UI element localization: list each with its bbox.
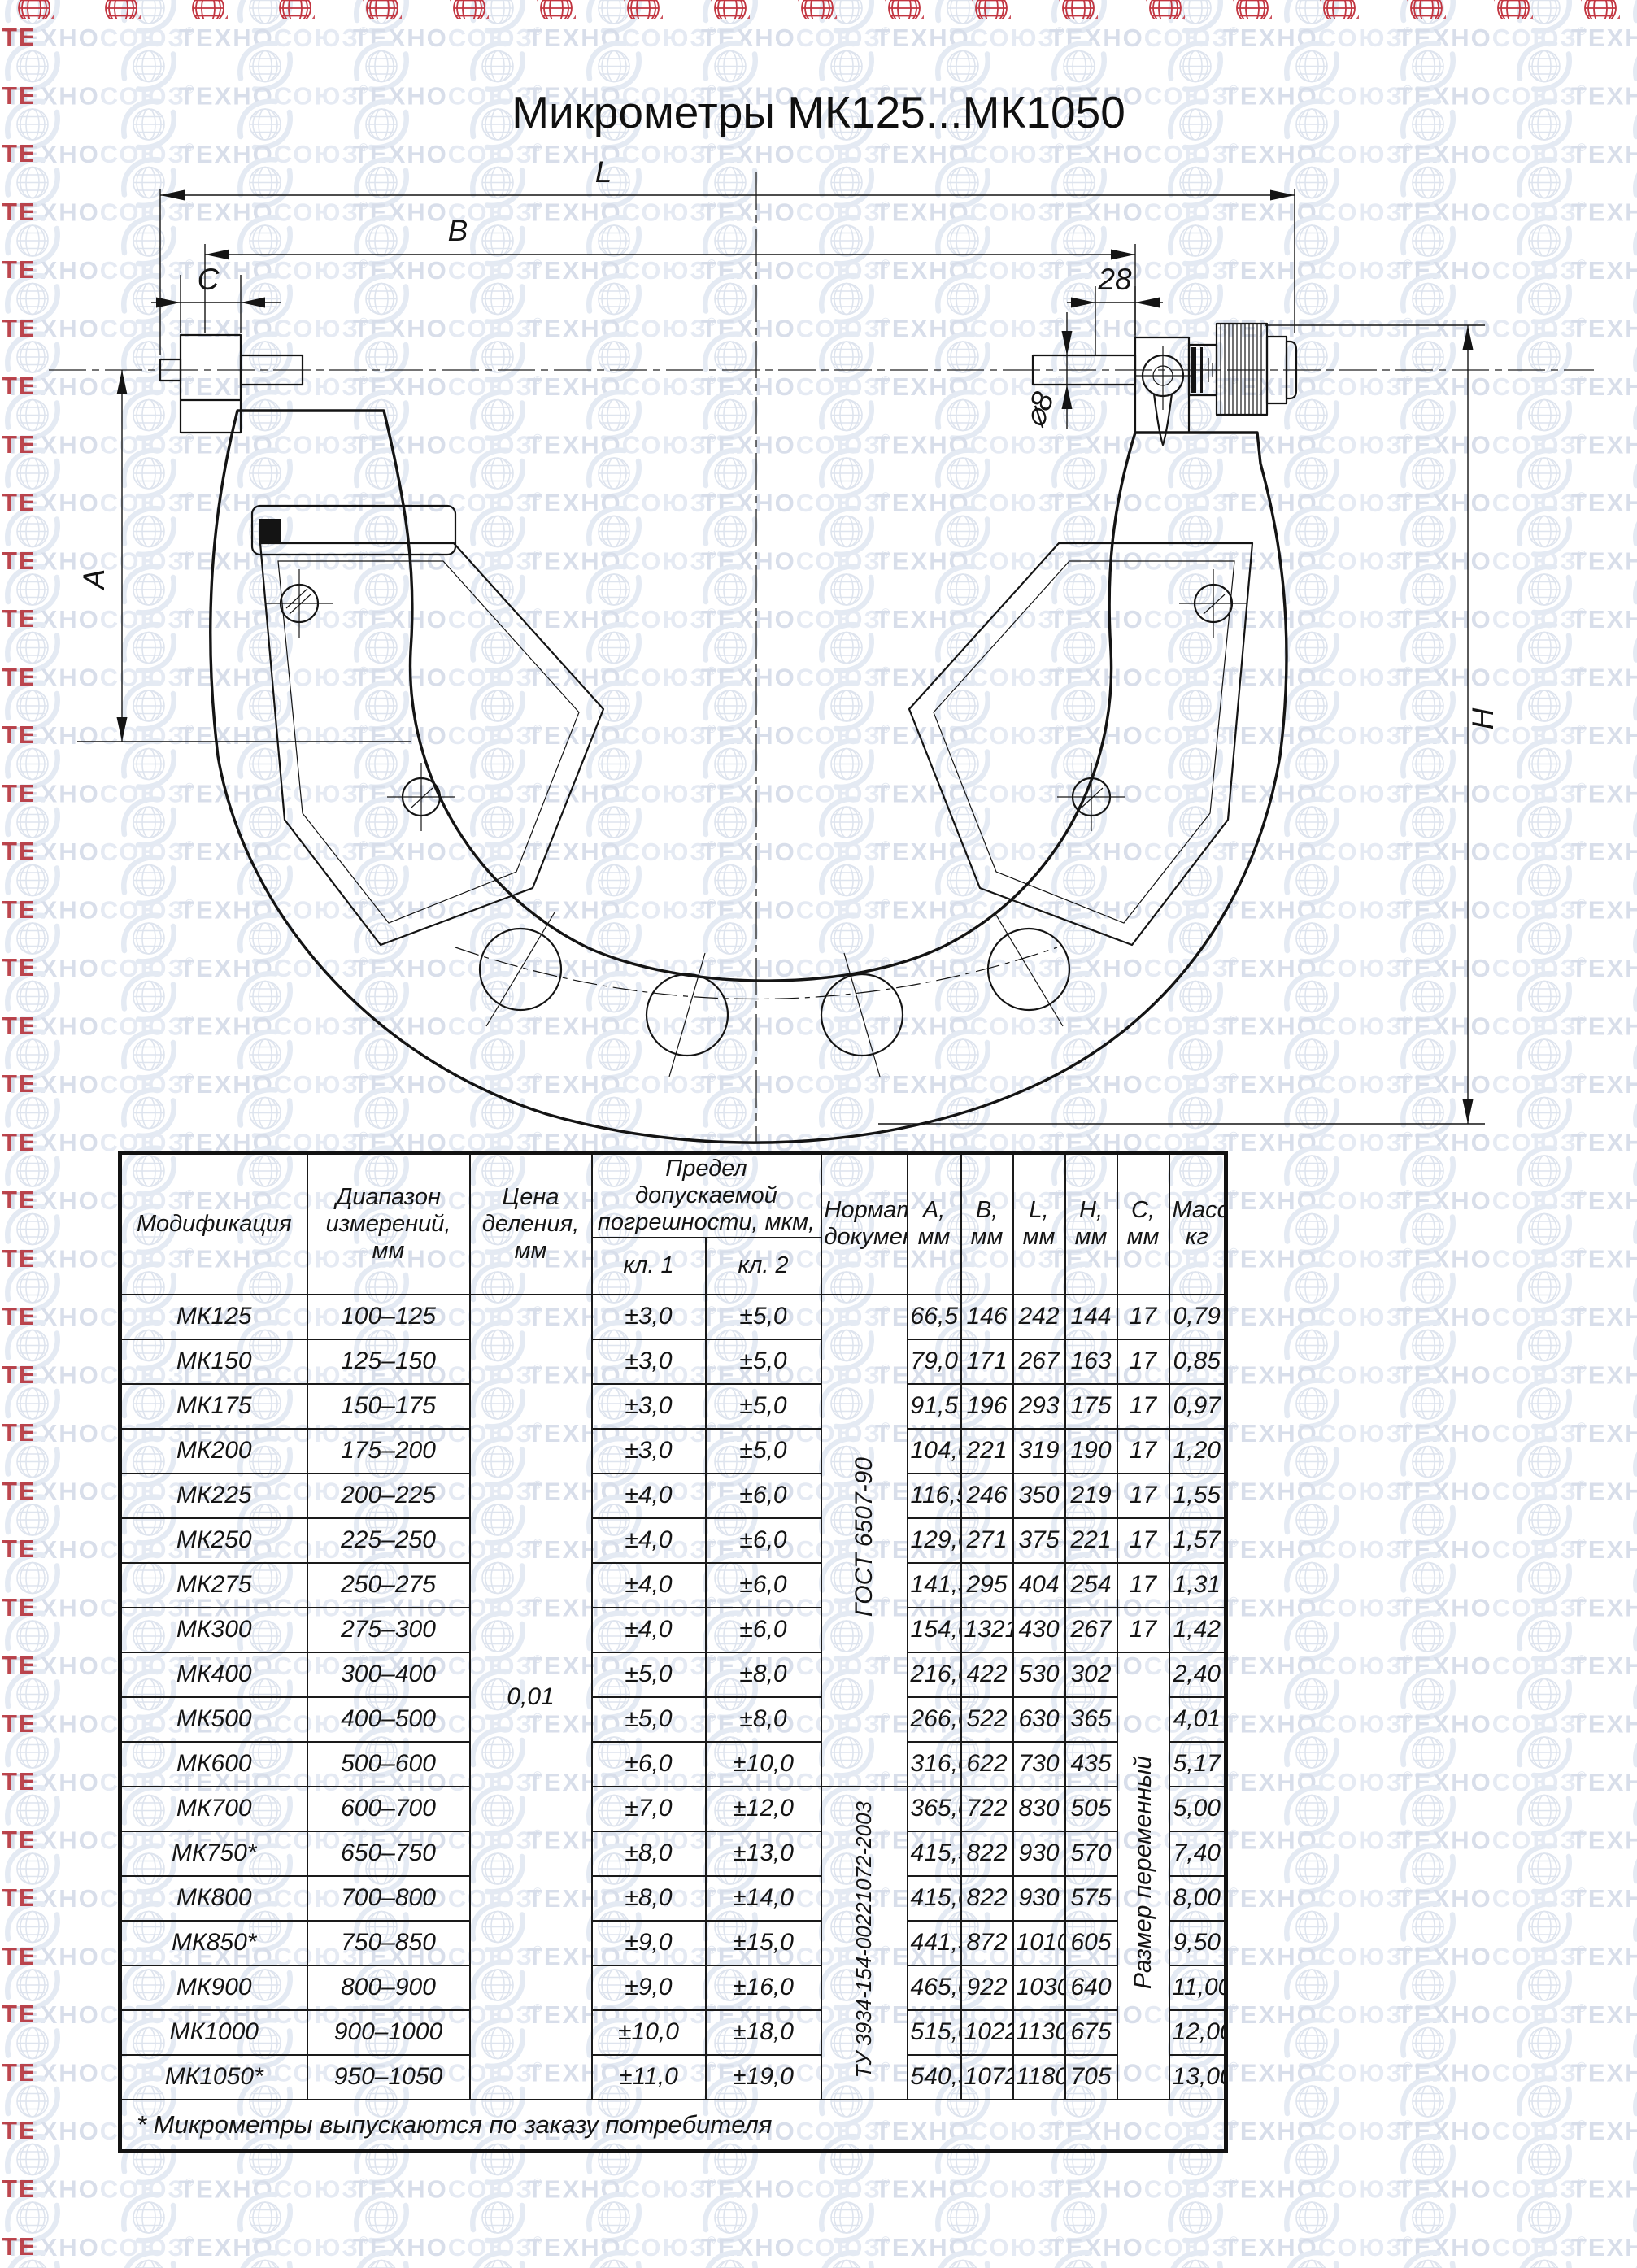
cell-l: 830: [1013, 1787, 1065, 1831]
cell-b: 221: [961, 1429, 1013, 1474]
watermark-red-text: ТЕХНОСОЮЗ: [2, 1418, 33, 1447]
cell-h: 267: [1065, 1608, 1117, 1652]
col-header-a: A, мм: [908, 1153, 961, 1295]
col-header-l: L, мм: [1013, 1153, 1065, 1295]
cell-h: 675: [1065, 2010, 1117, 2055]
cell-model: МК175: [120, 1384, 307, 1429]
table-row: МК600500–600±6,0±10,0316,06227304355,17: [120, 1742, 1226, 1787]
cell-model: МК600: [120, 1742, 307, 1787]
svg-text:ТЕХНОСОЮЗ®: ТЕХНОСОЮЗ®: [1571, 1419, 1637, 1447]
cell-a: 216,0: [908, 1652, 961, 1697]
dim-dia8: ⌀8: [1017, 312, 1073, 432]
cell-model: МК700: [120, 1787, 307, 1831]
watermark-red-text: ТЕХНОСОЮЗ: [2, 1651, 33, 1680]
cell-class2: ±19,0: [706, 2055, 821, 2100]
cell-class2: ±6,0: [706, 1608, 821, 1652]
svg-text:ТЕХНОСОЮЗ®: ТЕХНОСОЮЗ®: [1397, 1245, 1587, 1273]
watermark-red-text: ТЕХНОСОЮЗ: [2, 1477, 33, 1506]
cell-model: МК125: [120, 1295, 307, 1339]
svg-text:ТЕХНОСОЮЗ®: ТЕХНОСОЮЗ®: [1397, 1768, 1587, 1796]
watermark-red-text: ТЕХНОСОЮЗ: [2, 1244, 33, 1273]
cell-range: 250–275: [307, 1563, 470, 1608]
cell-l: 319: [1013, 1429, 1065, 1474]
cell-range: 100–125: [307, 1295, 470, 1339]
svg-text:ТЕХНОСОЮЗ®: ТЕХНОСОЮЗ®: [1223, 1710, 1413, 1739]
cell-a: 415,0: [908, 1876, 961, 1921]
dim-label-A: A: [77, 569, 111, 591]
cell-h: 705: [1065, 2055, 1117, 2100]
watermark-red-text: ТЕХНОСОЮЗ: [2, 2232, 33, 2261]
table-row: МК700600–700±7,0±12,0ТУ 3934-154-0022107…: [120, 1787, 1226, 1831]
svg-text:ТЕХНОСОЮЗ®: ТЕХНОСОЮЗ®: [701, 2233, 891, 2261]
cell-h: 144: [1065, 1295, 1117, 1339]
cell-l: 267: [1013, 1339, 1065, 1384]
cell-class2: ±6,0: [706, 1518, 821, 1563]
svg-text:ТЕХНОСОЮЗ®: ТЕХНОСОЮЗ®: [1397, 2233, 1587, 2261]
cell-b: 422: [961, 1652, 1013, 1697]
cell-h: 190: [1065, 1429, 1117, 1474]
watermark-red-text: ТЕХНОСОЮЗ: [2, 1942, 33, 1971]
cell-model: МК225: [120, 1474, 307, 1518]
cell-l: 1180: [1013, 2055, 1065, 2100]
cell-class1: ±4,0: [592, 1474, 706, 1518]
cell-mass: 9,50: [1169, 1921, 1226, 1965]
cell-a: 441,5: [908, 1921, 961, 1965]
cell-mass: 1,55: [1169, 1474, 1226, 1518]
cell-b: 1321: [961, 1608, 1013, 1652]
svg-text:ТЕХНОСОЮЗ®: ТЕХНОСОЮЗ®: [1571, 1535, 1637, 1564]
table-row: МК900800–900±9,0±16,0465,0922103064011,0…: [120, 1965, 1226, 2010]
page-title: Микрометры МК125...МК1050: [0, 86, 1637, 138]
svg-text:ТЕХНОСОЮЗ®: ТЕХНОСОЮЗ®: [1397, 1652, 1587, 1680]
cell-a: 540,5: [908, 2055, 961, 2100]
cell-model: МК500: [120, 1697, 307, 1742]
watermark-red-text: ТЕХНОСОЮЗ: [2, 2000, 33, 2029]
svg-text:ТЕХНОСОЮЗ®: ТЕХНОСОЮЗ®: [1571, 2059, 1637, 2087]
svg-text:ТЕХНОСОЮЗ®: ТЕХНОСОЮЗ®: [1223, 1884, 1413, 1913]
cell-class1: ±9,0: [592, 1965, 706, 2010]
dim-label-C: C: [198, 263, 220, 296]
cell-c: 17: [1117, 1384, 1169, 1429]
cell-a: 515,0: [908, 2010, 961, 2055]
footnote-row: * Микрометры выпускаются по заказу потре…: [120, 2100, 1226, 2152]
col-header-normative: Нормативный документ: [821, 1153, 908, 1295]
cell-range: 175–200: [307, 1429, 470, 1474]
dim-C: C: [151, 263, 281, 333]
dim-H: H: [878, 325, 1500, 1124]
svg-text:ТЕХНОСОЮЗ®: ТЕХНОСОЮЗ®: [1223, 1419, 1413, 1447]
cell-c: 17: [1117, 1429, 1169, 1474]
cell-class1: ±3,0: [592, 1384, 706, 1429]
watermark-red-text: ТЕХНОСОЮЗ: [2, 1709, 33, 1739]
cell-l: 293: [1013, 1384, 1065, 1429]
cell-a: 365,0: [908, 1787, 961, 1831]
watermark-red-text: ТЕХНОСОЮЗ: [2, 1826, 33, 1855]
svg-text:ТЕХНОСОЮЗ®: ТЕХНОСОЮЗ®: [1397, 1303, 1587, 1331]
cell-model: МК1000: [120, 2010, 307, 2055]
watermark-red-text: ТЕХНОСОЮЗ: [2, 1593, 33, 1622]
cell-c: 17: [1117, 1339, 1169, 1384]
dim-28: 28: [1067, 263, 1163, 355]
cell-mass: 5,17: [1169, 1742, 1226, 1787]
cell-h: 605: [1065, 1921, 1117, 1965]
dim-label-28: 28: [1097, 263, 1132, 296]
cell-l: 530: [1013, 1652, 1065, 1697]
barrel: [1189, 345, 1217, 395]
svg-text:ТЕХНОСОЮЗ®: ТЕХНОСОЮЗ®: [1397, 1535, 1587, 1564]
cell-h: 254: [1065, 1563, 1117, 1608]
watermark-red-text: ТЕХНОСОЮЗ: [2, 1534, 33, 1564]
table-row: МК850*750–850±9,0±15,0441,587210106059,5…: [120, 1921, 1226, 1965]
cell-mass: 12,00: [1169, 2010, 1226, 2055]
cell-l: 375: [1013, 1518, 1065, 1563]
cell-range: 500–600: [307, 1742, 470, 1787]
thimble: [1217, 324, 1267, 415]
svg-text:ТЕХНОСОЮЗ®: ТЕХНОСОЮЗ®: [527, 2175, 717, 2204]
svg-text:ТЕХНОСОЮЗ®: ТЕХНОСОЮЗ®: [1223, 1303, 1413, 1331]
cell-h: 221: [1065, 1518, 1117, 1563]
cell-class2: ±8,0: [706, 1652, 821, 1697]
cell-class2: ±8,0: [706, 1697, 821, 1742]
cell-model: МК300: [120, 1608, 307, 1652]
cell-model: МК275: [120, 1563, 307, 1608]
cell-class1: ±4,0: [592, 1563, 706, 1608]
watermark-red-text: ТЕХНОСОЮЗ: [2, 1767, 33, 1796]
watermark-red-text: ТЕХНОСОЮЗ: [2, 1883, 33, 1913]
svg-text:ТЕХНОСОЮЗ®: ТЕХНОСОЮЗ®: [1397, 2059, 1587, 2087]
cell-b: 146: [961, 1295, 1013, 1339]
col-header-b: B, мм: [961, 1153, 1013, 1295]
cell-class2: ±13,0: [706, 1831, 821, 1876]
svg-text:ТЕХНОСОЮЗ®: ТЕХНОСОЮЗ®: [1571, 1768, 1637, 1796]
cell-a: 79,0: [908, 1339, 961, 1384]
cell-a: 415,5: [908, 1831, 961, 1876]
anvil: [160, 335, 303, 433]
col-header-class1: кл. 1: [592, 1238, 706, 1295]
svg-text:ТЕХНОСОЮЗ®: ТЕХНОСОЮЗ®: [1571, 1594, 1637, 1622]
table-row: МК175150–175±3,0±5,091,5196293175170,97: [120, 1384, 1226, 1429]
cell-b: 822: [961, 1831, 1013, 1876]
svg-text:ТЕХНОСОЮЗ®: ТЕХНОСОЮЗ®: [1397, 2000, 1587, 2029]
cell-class1: ±5,0: [592, 1652, 706, 1697]
table-row: МК800700–800±8,0±14,0415,08229305758,00: [120, 1876, 1226, 1921]
cell-h: 175: [1065, 1384, 1117, 1429]
lock-lever: [1135, 346, 1191, 445]
cell-l: 242: [1013, 1295, 1065, 1339]
cell-class1: ±8,0: [592, 1831, 706, 1876]
cell-class1: ±10,0: [592, 2010, 706, 2055]
cell-b: 622: [961, 1742, 1013, 1787]
col-header-division: Цена деления, мм: [470, 1153, 592, 1295]
cell-class1: ±8,0: [592, 1876, 706, 1921]
svg-text:ТЕХНОСОЮЗ®: ТЕХНОСОЮЗ®: [1571, 1652, 1637, 1680]
svg-text:ТЕХНОСОЮЗ®: ТЕХНОСОЮЗ®: [1397, 1594, 1587, 1622]
cell-h: 640: [1065, 1965, 1117, 2010]
dim-label-L: L: [595, 155, 612, 189]
cell-c: 17: [1117, 1474, 1169, 1518]
cell-model: МК900: [120, 1965, 307, 2010]
col-header-c: C, мм: [1117, 1153, 1169, 1295]
svg-text:ТЕХНОСОЮЗ®: ТЕХНОСОЮЗ®: [1571, 1884, 1637, 1913]
table-row: МК225200–225±4,0±6,0116,5246350219171,55: [120, 1474, 1226, 1518]
cell-model: МК250: [120, 1518, 307, 1563]
cell-mass: 4,01: [1169, 1697, 1226, 1742]
cell-l: 1130: [1013, 2010, 1065, 2055]
cell-b: 1022: [961, 2010, 1013, 2055]
table-row: МК1000900–1000±10,0±18,0515,010221130675…: [120, 2010, 1226, 2055]
cell-class1: ±4,0: [592, 1608, 706, 1652]
cell-range: 900–1000: [307, 2010, 470, 2055]
cell-h: 575: [1065, 1876, 1117, 1921]
table-row: МК125100–1250,01±3,0±5,0ГОСТ 6507-9066,5…: [120, 1295, 1226, 1339]
cell-class2: ±5,0: [706, 1295, 821, 1339]
col-header-mass: Масса, кг: [1169, 1153, 1226, 1295]
table-row: МК500400–500±5,0±8,0266,05226303654,01: [120, 1697, 1226, 1742]
table-row: МК300275–300±4,0±6,0154,01321430267171,4…: [120, 1608, 1226, 1652]
watermark-red-text: ТЕХНОСОЮЗ: [2, 2116, 33, 2145]
cell-h: 365: [1065, 1697, 1117, 1742]
svg-text:ТЕХНОСОЮЗ®: ТЕХНОСОЮЗ®: [1571, 1478, 1637, 1506]
svg-text:ТЕХНОСОЮЗ®: ТЕХНОСОЮЗ®: [1223, 1535, 1413, 1564]
cell-class2: ±5,0: [706, 1429, 821, 1474]
cell-a: 91,5: [908, 1384, 961, 1429]
svg-text:ТЕХНОСОЮЗ®: ТЕХНОСОЮЗ®: [1571, 2175, 1637, 2204]
svg-text:ТЕХНОСОЮЗ®: ТЕХНОСОЮЗ®: [5, 2233, 195, 2261]
svg-text:ТЕХНОСОЮЗ®: ТЕХНОСОЮЗ®: [1397, 2117, 1587, 2145]
cell-mass: 7,40: [1169, 1831, 1226, 1876]
svg-text:ТЕХНОСОЮЗ®: ТЕХНОСОЮЗ®: [1571, 1943, 1637, 1971]
cell-a: 104,0: [908, 1429, 961, 1474]
cell-a: 316,0: [908, 1742, 961, 1787]
cell-mass: 1,31: [1169, 1563, 1226, 1608]
cell-class2: ±5,0: [706, 1339, 821, 1384]
cell-a: 266,0: [908, 1697, 961, 1742]
svg-text:ТЕХНОСОЮЗ®: ТЕХНОСОЮЗ®: [1571, 1186, 1637, 1215]
cell-b: 196: [961, 1384, 1013, 1429]
col-header-range: Диапазон измерений, мм: [307, 1153, 470, 1295]
cell-model: МК150: [120, 1339, 307, 1384]
svg-text:ТЕХНОСОЮЗ®: ТЕХНОСОЮЗ®: [1571, 2000, 1637, 2029]
cell-b: 872: [961, 1921, 1013, 1965]
cell-model: МК400: [120, 1652, 307, 1697]
svg-text:ТЕХНОСОЮЗ®: ТЕХНОСОЮЗ®: [1571, 1710, 1637, 1739]
micrometer-frame: [211, 411, 1287, 1143]
cell-l: 1010: [1013, 1921, 1065, 1965]
cell-range: 800–900: [307, 1965, 470, 2010]
svg-text:ТЕХНОСОЮЗ®: ТЕХНОСОЮЗ®: [353, 2175, 543, 2204]
cell-class1: ±11,0: [592, 2055, 706, 2100]
cell-range: 600–700: [307, 1787, 470, 1831]
cell-class1: ±3,0: [592, 1295, 706, 1339]
cell-c: 17: [1117, 1295, 1169, 1339]
svg-text:ТЕХНОСОЮЗ®: ТЕХНОСОЮЗ®: [1223, 2000, 1413, 2029]
cell-l: 350: [1013, 1474, 1065, 1518]
svg-text:ТЕХНОСОЮЗ®: ТЕХНОСОЮЗ®: [179, 2233, 369, 2261]
watermark-red-text: ТЕХНОСОЮЗ: [2, 1302, 33, 1331]
cell-h: 570: [1065, 1831, 1117, 1876]
cell-class1: ±9,0: [592, 1921, 706, 1965]
watermark-red-text: ТЕХНОСОЮЗ: [2, 2174, 33, 2204]
cell-mass: 1,42: [1169, 1608, 1226, 1652]
cell-range: 400–500: [307, 1697, 470, 1742]
cell-a: 116,5: [908, 1474, 961, 1518]
svg-text:ТЕХНОСОЮЗ®: ТЕХНОСОЮЗ®: [1223, 1943, 1413, 1971]
cell-b: 1072: [961, 2055, 1013, 2100]
cell-h: 505: [1065, 1787, 1117, 1831]
cell-class2: ±16,0: [706, 1965, 821, 2010]
cell-division-merged: 0,01: [470, 1295, 592, 2100]
cell-b: 271: [961, 1518, 1013, 1563]
cell-b: 822: [961, 1876, 1013, 1921]
col-header-error-limit: Предел допускаемой погрешности, мкм,: [592, 1153, 821, 1238]
svg-text:ТЕХНОСОЮЗ®: ТЕХНОСОЮЗ®: [1397, 1710, 1587, 1739]
cell-a: 66,5: [908, 1295, 961, 1339]
dim-label-H: H: [1466, 707, 1500, 729]
cell-model: МК850*: [120, 1921, 307, 1965]
svg-text:ТЕХНОСОЮЗ®: ТЕХНОСОЮЗ®: [1571, 1303, 1637, 1331]
watermark-red-text: ТЕХНОСОЮЗ: [2, 1186, 33, 1215]
svg-text:ТЕХНОСОЮЗ®: ТЕХНОСОЮЗ®: [1223, 1594, 1413, 1622]
svg-text:ТЕХНОСОЮЗ®: ТЕХНОСОЮЗ®: [1571, 2117, 1637, 2145]
cell-range: 750–850: [307, 1921, 470, 1965]
cell-l: 930: [1013, 1831, 1065, 1876]
svg-text:ТЕХНОСОЮЗ®: ТЕХНОСОЮЗ®: [875, 2233, 1065, 2261]
table-row: МК400300–400±5,0±8,0216,0422530302Размер…: [120, 1652, 1226, 1697]
cell-h: 435: [1065, 1742, 1117, 1787]
table-row: МК1050*950–1050±11,0±19,0540,51072118070…: [120, 2055, 1226, 2100]
dim-label-dia8: ⌀8: [1017, 387, 1060, 432]
spindle-assembly: [1033, 324, 1296, 445]
cell-b: 922: [961, 1965, 1013, 2010]
svg-text:ТЕХНОСОЮЗ®: ТЕХНОСОЮЗ®: [527, 2233, 717, 2261]
cell-mass: 11,00: [1169, 1965, 1226, 2010]
cell-mass: 5,00: [1169, 1787, 1226, 1831]
cell-mass: 0,79: [1169, 1295, 1226, 1339]
cell-b: 295: [961, 1563, 1013, 1608]
cell-c: 17: [1117, 1518, 1169, 1563]
cell-model: МК800: [120, 1876, 307, 1921]
cell-b: 722: [961, 1787, 1013, 1831]
svg-text:ТЕХНОСОЮЗ®: ТЕХНОСОЮЗ®: [1049, 2233, 1239, 2261]
dim-B: B: [205, 214, 1135, 335]
svg-text:ТЕХНОСОЮЗ®: ТЕХНОСОЮЗ®: [1397, 2175, 1587, 2204]
col-header-class2: кл. 2: [706, 1238, 821, 1295]
cell-a: 129,0: [908, 1518, 961, 1563]
dim-A: A: [77, 370, 411, 742]
cell-class2: ±6,0: [706, 1474, 821, 1518]
svg-text:ТЕХНОСОЮЗ®: ТЕХНОСОЮЗ®: [1397, 1943, 1587, 1971]
svg-text:ТЕХНОСОЮЗ®: ТЕХНОСОЮЗ®: [701, 2175, 891, 2204]
cell-class2: ±5,0: [706, 1384, 821, 1429]
table-row: МК200175–200±3,0±5,0104,0221319190171,20: [120, 1429, 1226, 1474]
cell-class2: ±12,0: [706, 1787, 821, 1831]
cell-normative-merged: ТУ 3934-154-00221072-2003: [821, 1787, 908, 2100]
footnote-text: * Микрометры выпускаются по заказу потре…: [120, 2100, 1226, 2152]
dim-label-B: B: [448, 214, 468, 247]
cell-model: МК200: [120, 1429, 307, 1474]
cell-range: 300–400: [307, 1652, 470, 1697]
cell-mass: 1,57: [1169, 1518, 1226, 1563]
cell-mass: 1,20: [1169, 1429, 1226, 1474]
cell-h: 302: [1065, 1652, 1117, 1697]
svg-text:ТЕХНОСОЮЗ®: ТЕХНОСОЮЗ®: [1397, 1826, 1587, 1855]
cell-class2: ±10,0: [706, 1742, 821, 1787]
technical-drawing: L B C: [0, 0, 1637, 1171]
cell-range: 125–150: [307, 1339, 470, 1384]
cell-l: 630: [1013, 1697, 1065, 1742]
svg-text:ТЕХНОСОЮЗ®: ТЕХНОСОЮЗ®: [1223, 1186, 1413, 1215]
table-row: МК250225–250±4,0±6,0129,0271375221171,57: [120, 1518, 1226, 1563]
cell-h: 163: [1065, 1339, 1117, 1384]
svg-text:ТЕХНОСОЮЗ®: ТЕХНОСОЮЗ®: [1571, 1826, 1637, 1855]
svg-text:ТЕХНОСОЮЗ®: ТЕХНОСОЮЗ®: [1397, 1884, 1587, 1913]
svg-text:ТЕХНОСОЮЗ®: ТЕХНОСОЮЗ®: [1397, 1419, 1587, 1447]
svg-text:ТЕХНОСОЮЗ®: ТЕХНОСОЮЗ®: [1571, 2233, 1637, 2261]
cell-class1: ±5,0: [592, 1697, 706, 1742]
svg-text:ТЕХНОСОЮЗ®: ТЕХНОСОЮЗ®: [1049, 2175, 1239, 2204]
svg-text:ТЕХНОСОЮЗ®: ТЕХНОСОЮЗ®: [1223, 1652, 1413, 1680]
cell-range: 275–300: [307, 1608, 470, 1652]
col-header-modification: Модификация: [120, 1153, 307, 1295]
spec-table-body: МК125100–1250,01±3,0±5,0ГОСТ 6507-9066,5…: [120, 1295, 1226, 2152]
cell-b: 171: [961, 1339, 1013, 1384]
cell-b: 246: [961, 1474, 1013, 1518]
svg-text:ТЕХНОСОЮЗ®: ТЕХНОСОЮЗ®: [1223, 1826, 1413, 1855]
spec-table: Модификация Диапазон измерений, мм Цена …: [118, 1151, 1228, 2153]
cell-class2: ±14,0: [706, 1876, 821, 1921]
cell-mass: 0,97: [1169, 1384, 1226, 1429]
catalog-page: ТЕХНОСОЮЗ®ТЕХНОСОЮЗ®ТЕХНОСОЮЗ®ТЕХНОСОЮЗ®…: [0, 0, 1637, 2268]
watermark-red-text: ТЕХНОСОЮЗ: [2, 2058, 33, 2087]
cell-c: 17: [1117, 1563, 1169, 1608]
table-row: МК750*650–750±8,0±13,0415,58229305707,40: [120, 1831, 1226, 1876]
cell-class1: ±3,0: [592, 1339, 706, 1384]
cell-mass: 2,40: [1169, 1652, 1226, 1697]
cell-model: МК1050*: [120, 2055, 307, 2100]
cell-class2: ±6,0: [706, 1563, 821, 1608]
cell-a: 154,0: [908, 1608, 961, 1652]
svg-text:ТЕХНОСОЮЗ®: ТЕХНОСОЮЗ®: [353, 2233, 543, 2261]
cell-l: 730: [1013, 1742, 1065, 1787]
svg-text:ТЕХНОСОЮЗ®: ТЕХНОСОЮЗ®: [875, 2175, 1065, 2204]
svg-text:ТЕХНОСОЮЗ®: ТЕХНОСОЮЗ®: [1223, 1361, 1413, 1390]
cell-class1: ±3,0: [592, 1429, 706, 1474]
cell-mass: 8,00: [1169, 1876, 1226, 1921]
cell-class2: ±15,0: [706, 1921, 821, 1965]
cell-range: 950–1050: [307, 2055, 470, 2100]
col-header-h: H, мм: [1065, 1153, 1117, 1295]
cell-class1: ±7,0: [592, 1787, 706, 1831]
cell-a: 141,5: [908, 1563, 961, 1608]
cell-class1: ±6,0: [592, 1742, 706, 1787]
svg-text:ТЕХНОСОЮЗ®: ТЕХНОСОЮЗ®: [1223, 2117, 1413, 2145]
cell-h: 219: [1065, 1474, 1117, 1518]
cell-l: 1030: [1013, 1965, 1065, 2010]
svg-text:ТЕХНОСОЮЗ®: ТЕХНОСОЮЗ®: [1397, 1361, 1587, 1390]
svg-text:ТЕХНОСОЮЗ®: ТЕХНОСОЮЗ®: [5, 2175, 195, 2204]
cell-a: 465,0: [908, 1965, 961, 2010]
cell-l: 930: [1013, 1876, 1065, 1921]
left-side-plate: [252, 506, 603, 945]
svg-text:ТЕХНОСОЮЗ®: ТЕХНОСОЮЗ®: [1223, 1245, 1413, 1273]
svg-text:ТЕХНОСОЮЗ®: ТЕХНОСОЮЗ®: [1223, 2233, 1413, 2261]
svg-text:ТЕХНОСОЮЗ®: ТЕХНОСОЮЗ®: [1397, 1186, 1587, 1215]
svg-text:ТЕХНОСОЮЗ®: ТЕХНОСОЮЗ®: [1223, 1768, 1413, 1796]
svg-text:ТЕХНОСОЮЗ®: ТЕХНОСОЮЗ®: [1571, 1361, 1637, 1390]
table-row: МК150125–150±3,0±5,079,0171267163170,85: [120, 1339, 1226, 1384]
watermark-red-text: ТЕХНОСОЮЗ: [2, 1360, 33, 1390]
cell-range: 650–750: [307, 1831, 470, 1876]
